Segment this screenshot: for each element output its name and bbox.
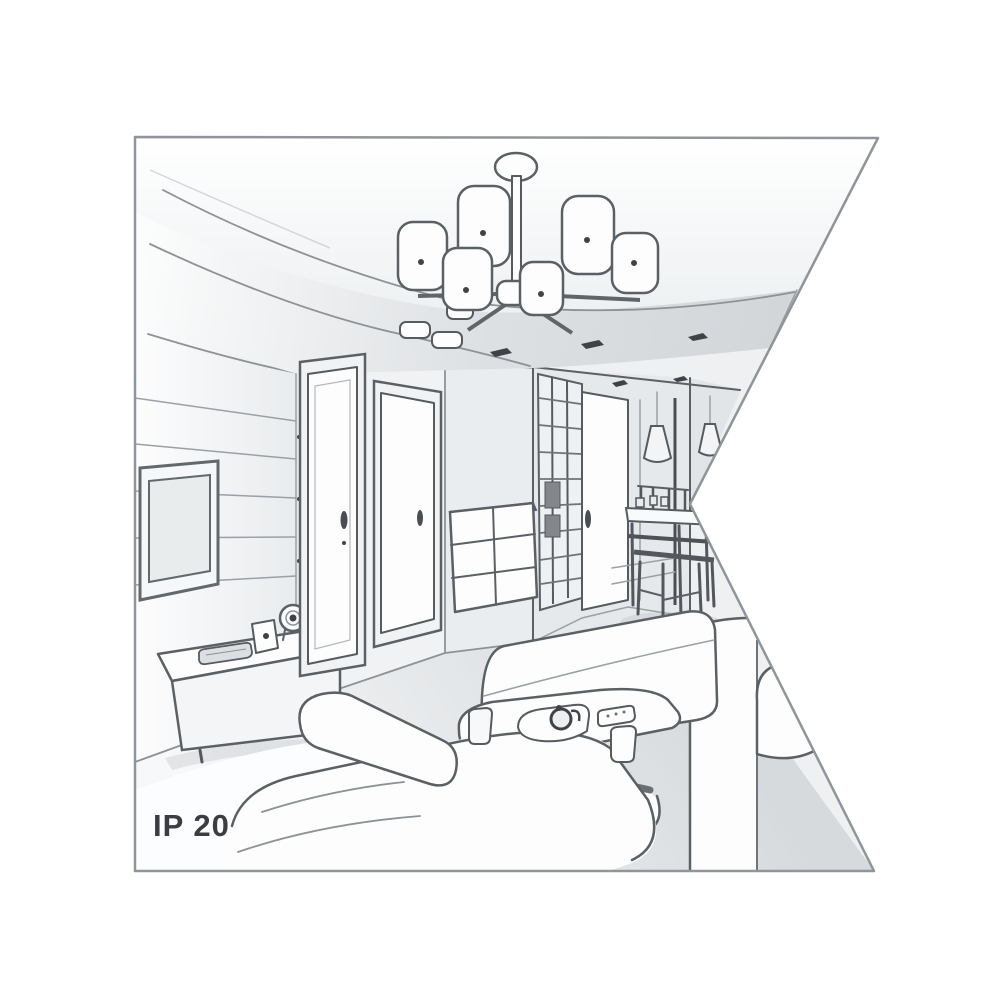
partition-dark-panel [545,482,560,508]
glass-partition [538,374,628,610]
clock-center [290,615,297,622]
room-sketch: IP 20 [0,0,1000,1000]
drawer-cabinet [450,503,537,612]
dining-table-top [626,508,717,525]
table-item [650,496,657,505]
lamp-shade-4 [562,196,614,274]
arm-elbow [400,322,430,338]
lamp-shade-1 [398,222,447,290]
lamp-shade-6 [520,262,563,315]
product-illustration: IP 20 [0,0,1000,1000]
door-right-panel [381,393,434,633]
table-item [636,498,644,507]
partition-dark-panel [545,515,560,537]
door-left [300,354,365,676]
cup [611,726,636,762]
cup [469,708,492,744]
chandelier-stem [512,176,521,284]
tv-screen [149,475,210,582]
door-handle-icon [341,511,348,529]
hall-door [582,392,628,610]
teapot-lid [556,705,562,711]
table-item [661,497,668,506]
teapot [551,709,571,729]
sofa-right-armrest [757,663,816,758]
arm-elbow [432,332,462,348]
door-handle-icon [585,510,591,528]
door-right [374,381,441,647]
door-handle-icon [417,510,423,526]
lamp-shade-3 [443,248,492,310]
ip-rating-label: IP 20 [153,808,230,843]
scene: IP 20 [120,120,900,890]
speaker-cone-icon [263,633,269,639]
